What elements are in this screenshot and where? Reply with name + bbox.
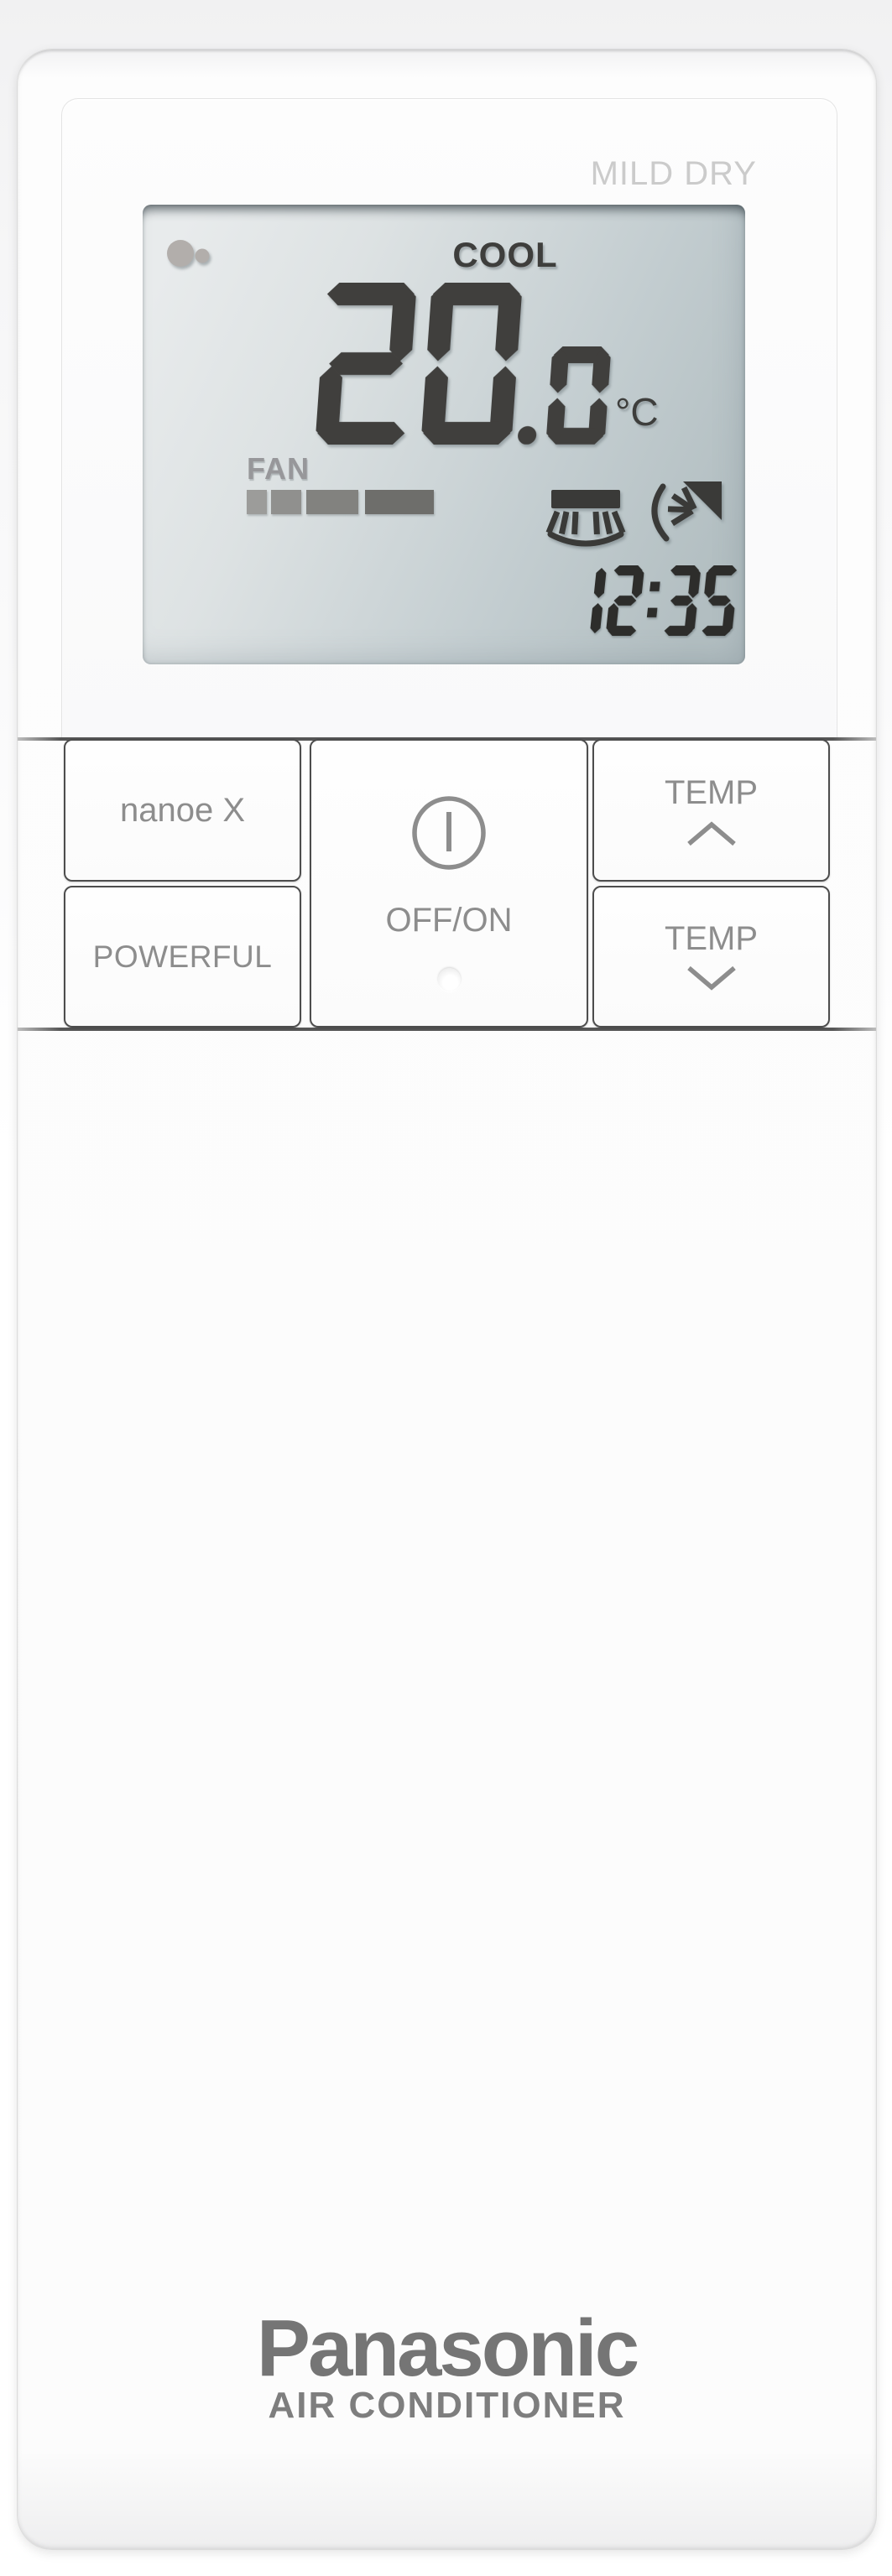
brand-logo: Panasonic — [18, 2303, 876, 2395]
fan-bar — [365, 490, 434, 514]
nanoe-x-button[interactable]: nanoe X — [64, 739, 301, 882]
lcd-display: COOL °C FAN — [143, 205, 745, 664]
fan-speed-indicator — [247, 490, 434, 514]
temperature-value-main — [315, 283, 523, 449]
fan-bar — [271, 490, 301, 514]
upper-face-panel: MILD DRY COOL °C FAN — [61, 98, 837, 737]
panel-bottom-line — [18, 1028, 876, 1031]
button-panel: nanoe X POWERFUL OFF/ON TEMP TEMP — [18, 737, 876, 1031]
temp-up-button[interactable]: TEMP — [592, 739, 830, 882]
clock-display — [567, 565, 739, 640]
led-indicator — [438, 968, 461, 991]
fan-bar — [306, 490, 358, 514]
temp-up-button-label: TEMP — [665, 774, 758, 812]
temp-down-button-label: TEMP — [665, 920, 758, 958]
temp-down-button[interactable]: TEMP — [592, 886, 830, 1028]
power-button-label: OFF/ON — [311, 902, 587, 939]
remote-body: MILD DRY COOL °C FAN — [17, 49, 877, 2550]
temperature-unit: °C — [615, 389, 659, 435]
powerful-button[interactable]: POWERFUL — [64, 886, 301, 1028]
nanoe-indicator-icon — [161, 233, 215, 275]
product-label: AIR CONDITIONER — [18, 2385, 876, 2427]
chevron-down-icon — [682, 965, 741, 993]
mode-label: COOL — [421, 235, 589, 275]
nanoe-x-button-label: nanoe X — [120, 792, 245, 830]
chevron-up-icon — [682, 819, 741, 847]
power-icon — [409, 793, 489, 873]
screenshot-canvas: { "branding": { "logo": "Panasonic", "pr… — [0, 0, 892, 2576]
fan-label: FAN — [247, 451, 310, 487]
airflow-horizontal-swing-icon — [644, 481, 722, 547]
airflow-vertical-swing-icon — [544, 486, 628, 551]
powerful-button-label: POWERFUL — [93, 939, 273, 975]
mild-dry-status-label: MILD DRY — [591, 155, 757, 193]
power-button[interactable]: OFF/ON — [310, 739, 588, 1028]
fan-bar — [247, 490, 267, 514]
temperature-value-decimal — [517, 346, 612, 449]
